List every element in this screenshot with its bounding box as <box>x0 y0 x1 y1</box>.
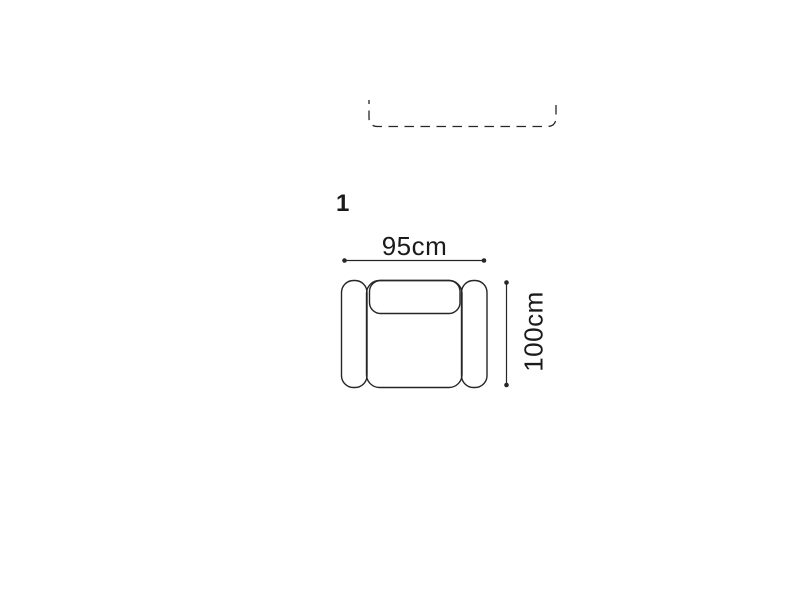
armchair-top-view-drawing <box>342 281 488 388</box>
height-dimension-end-dot <box>504 383 509 388</box>
diagram-drawing <box>0 0 800 600</box>
armchair-left-armrest <box>342 281 368 388</box>
armchair-backrest <box>370 281 461 314</box>
furniture-dimension-diagram: 1 95cm 100cm <box>0 0 800 600</box>
height-dimension-line <box>504 280 509 387</box>
height-dimension-label: 100cm <box>521 272 548 392</box>
armchair-seat <box>367 281 463 388</box>
width-dimension-label: 95cm <box>344 233 485 260</box>
module-index-label: 1 <box>336 193 360 215</box>
height-dimension-start-dot <box>504 280 509 285</box>
armchair-right-armrest <box>462 281 488 388</box>
dashed-module-outline <box>369 100 556 127</box>
